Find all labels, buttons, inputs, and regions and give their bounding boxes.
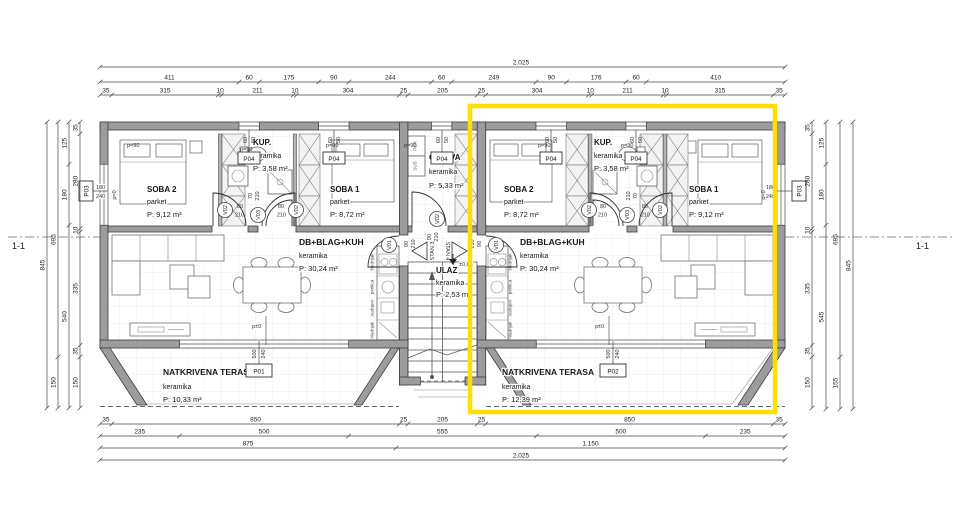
window-tag: P02 [607, 369, 619, 376]
window-tag: P04 [630, 156, 642, 163]
dimension-label: 35 [73, 347, 80, 355]
room-title: DB+BLAG+KUH [520, 237, 585, 247]
door-tag-v02: V02 [223, 205, 229, 215]
stan3-label: STAN 3 [430, 242, 436, 261]
dimension-label: 180 [819, 189, 826, 200]
room-area: P: 9,12 m² [147, 210, 182, 219]
dimension-label: 25 [400, 88, 408, 95]
kitchen-label-washer: perilica [370, 279, 375, 294]
window-tag: P01 [253, 369, 265, 376]
dimension-label: 545 [819, 311, 826, 322]
window-dim: 50 [336, 137, 342, 143]
kitchen-label-fridge: hladnjak [508, 321, 513, 339]
dimension-label: 150 [805, 377, 812, 388]
dimension-label: 125 [62, 137, 69, 148]
dimension-label: 90 [548, 75, 556, 82]
room-area: P: 3,58 m² [253, 164, 288, 173]
room-area: P: 2,53 m² [436, 290, 471, 299]
dimension-label: 235 [134, 429, 145, 436]
dimension-label: 10 [216, 88, 224, 95]
tv-board-right [695, 323, 755, 336]
room-area: P: 8,72 m² [504, 210, 539, 219]
room-title: SOBA 2 [147, 185, 177, 194]
room-title: KUP. [594, 138, 612, 147]
kitchen-right: štednjak perilica sudoper hladnjak [486, 246, 513, 340]
dimension-label: 244 [385, 75, 396, 82]
section-label: 1-1 [916, 241, 929, 251]
kitchen-left: štednjak perilica sudoper hladnjak [370, 246, 400, 340]
section-label: 1-1 [12, 241, 25, 251]
dimension-label: 2.025 [513, 60, 530, 67]
window-dim: 240 [261, 349, 267, 358]
dimension-label: 845 [40, 259, 47, 270]
dimension-label: 90 [330, 75, 338, 82]
room-floor: parket [147, 199, 167, 206]
dimension-label: 850 [250, 417, 261, 424]
window-dim: 60 [630, 137, 636, 143]
dimension-label: 150 [51, 377, 58, 388]
parapet-label: p=90 [127, 143, 139, 149]
dimension-label: 25 [478, 417, 486, 424]
dimension-label: 304 [343, 88, 354, 95]
dimension-label: 211 [252, 88, 263, 95]
dimension-label: 235 [740, 429, 751, 436]
door-dim: 210 [626, 191, 632, 200]
dimension-label: 35 [102, 417, 110, 424]
sink-icon [637, 166, 657, 186]
room-floor: keramika [163, 384, 192, 391]
dimension-label: 10 [73, 226, 80, 234]
door-dim: 210 [598, 213, 607, 219]
room-title: NATKRIVENA TERASA [163, 367, 255, 377]
dimension-label: 205 [437, 417, 448, 424]
kitchen-label-sink: sudoper [370, 299, 375, 316]
dimension-label: 280 [73, 175, 80, 186]
room-title: DB+BLAG+KUH [299, 237, 364, 247]
door-dim: 80 [278, 204, 284, 210]
dimension-label: 10 [587, 88, 595, 95]
dimension-label: 211 [622, 88, 633, 95]
room-area: P: 12,39 m² [502, 395, 541, 404]
dimension-label: 175 [284, 75, 295, 82]
door-tag-v03: V03 [256, 210, 262, 220]
room-floor: parket [330, 199, 350, 206]
dimension-label: 180 [62, 189, 69, 200]
floor-plan-canvas: PER SUŠ [0, 0, 960, 527]
door-dim: 90 [404, 241, 410, 247]
dimension-label: 60 [633, 75, 641, 82]
door-tag-v03: V03 [625, 210, 631, 220]
door-dim: 210 [277, 213, 286, 219]
room-floor: keramika [299, 253, 328, 260]
dimension-label: 10 [291, 88, 299, 95]
dimension-label: 176 [591, 75, 602, 82]
door-dim: 90 [477, 241, 483, 247]
room-floor: keramika [436, 280, 465, 287]
kitchen-label-sink: sudoper [508, 299, 513, 316]
dimension-label: 125 [819, 137, 826, 148]
dimension-label: 60 [438, 75, 446, 82]
dimension-label: 1.150 [582, 441, 599, 448]
room-floor: keramika [502, 384, 531, 391]
door-tag-v02: V02 [587, 205, 593, 215]
wardrobe-col-c [455, 134, 477, 226]
window-tag: P04 [436, 156, 448, 163]
floor-level-label: p±0 [252, 324, 261, 330]
window-tag: P03 [797, 185, 804, 197]
dimension-label: 10 [805, 226, 812, 234]
floor-plan-page: PER SUŠ [0, 0, 960, 527]
parapet-label: p=0 [112, 190, 118, 199]
door-dim: 210 [255, 191, 261, 200]
door-tag-v01: V01 [387, 240, 393, 250]
dimension-label: 10 [661, 88, 669, 95]
room-area: P: 30,24 m² [299, 264, 338, 273]
wardrobe-col-f [667, 134, 688, 226]
door-tag-v01: V01 [494, 240, 500, 250]
dimension-label: 875 [243, 441, 254, 448]
window-dim: 50 [251, 137, 257, 143]
room-title: SOBA 2 [504, 185, 534, 194]
window-dim: 60 [328, 137, 334, 143]
dining-table [584, 267, 642, 303]
dimension-label: 500 [615, 429, 626, 436]
door-dim: 80 [600, 204, 606, 210]
room-area: P: 10,33 m² [163, 395, 202, 404]
dimension-label: 150 [73, 377, 80, 388]
dimension-label: 205 [437, 88, 448, 95]
dimension-label: 411 [164, 75, 175, 82]
dimension-label: 25 [400, 417, 408, 424]
door-dim: 70 [248, 193, 254, 199]
dimension-label: 155 [833, 377, 840, 388]
dimension-label: 280 [805, 175, 812, 186]
room-area: P: 5,33 m² [429, 181, 464, 190]
dimension-label: 335 [73, 283, 80, 294]
utility-boxes: PER SUŠ [408, 136, 425, 176]
room-floor: keramika [594, 153, 623, 160]
door-dim: 210 [641, 213, 650, 219]
door-tag-v02: V02 [435, 214, 441, 224]
door-tag-v02: V02 [294, 205, 300, 215]
window-tag: P04 [545, 156, 557, 163]
room-area: P: 3,58 m² [594, 164, 629, 173]
dimension-label: 540 [62, 311, 69, 322]
dimension-label: 695 [51, 234, 58, 245]
dimension-label: 2.025 [513, 453, 530, 460]
floor-level-label: p±0 [595, 324, 604, 330]
window-dim: 180 [96, 185, 105, 191]
door-dim: 80 [642, 204, 648, 210]
dimension-label: 845 [846, 260, 853, 271]
dimension-label: 35 [73, 124, 80, 132]
window-tag: P04 [243, 156, 255, 163]
dining-table [243, 267, 301, 303]
dimension-label: 315 [160, 88, 171, 95]
parapet-label: p=90 [404, 143, 416, 149]
room-title: SOBA 1 [330, 185, 360, 194]
room-title: ULAZ [436, 266, 457, 275]
window-dim: 60 [545, 137, 551, 143]
dimension-label: 25 [478, 88, 486, 95]
dryer-label: SUŠ [412, 161, 418, 170]
door-tag-v02: V02 [658, 205, 664, 215]
dimension-label: 249 [488, 75, 499, 82]
window-dim: 240 [96, 194, 105, 200]
dimension-label: 410 [710, 75, 721, 82]
door-dim: 210 [411, 239, 417, 248]
room-floor: parket [689, 199, 709, 206]
room-title: NATKRIVENA TERASA [502, 367, 594, 377]
window-dim: 50 [553, 137, 559, 143]
door-dim: 210 [434, 232, 440, 241]
tv-board-left [130, 323, 190, 336]
dimension-label: 35 [805, 124, 812, 132]
dimension-label: 304 [532, 88, 543, 95]
window-dim: 500 [606, 349, 612, 358]
dimension-label: 35 [776, 88, 784, 95]
window-tag: P04 [328, 156, 340, 163]
window-tag: P03 [84, 185, 91, 197]
stan4-label: STAN 4 [444, 242, 450, 261]
room-area: P: 30,24 m² [520, 264, 559, 273]
kitchen-label-stove: štednjak [508, 253, 513, 271]
kitchen-label-washer: perilica [508, 279, 513, 294]
dimension-label: 500 [259, 429, 270, 436]
room-area: P: 8,72 m² [330, 210, 365, 219]
door-dim: 70 [633, 193, 639, 199]
window-dim: 50 [444, 137, 450, 143]
dimension-label: 60 [246, 75, 254, 82]
room-title: SOBA 1 [689, 185, 719, 194]
room-floor: keramika [429, 169, 458, 176]
dimension-label: 35 [102, 88, 110, 95]
room-floor: keramika [520, 253, 549, 260]
dimension-label: 35 [776, 417, 784, 424]
door-dim: 90 [427, 234, 433, 240]
door-dim: 80 [237, 204, 243, 210]
window-dim: 60 [436, 137, 442, 143]
door-dim: 210 [235, 213, 244, 219]
window-dim: 240 [615, 349, 621, 358]
dimension-label: 695 [833, 234, 840, 245]
window-dim: 500 [252, 349, 258, 358]
window-dim: 50 [638, 137, 644, 143]
dimension-label: 35 [805, 347, 812, 355]
room-area: P: 9,12 m² [689, 210, 724, 219]
dimension-label: 850 [624, 417, 635, 424]
dimension-label: 335 [805, 283, 812, 294]
dimension-label: 315 [715, 88, 726, 95]
sink-icon [228, 166, 248, 186]
room-floor: parket [504, 199, 524, 206]
window-dim: 60 [243, 137, 249, 143]
dimension-label: 555 [437, 429, 448, 436]
kitchen-label-fridge: hladnjak [370, 321, 375, 339]
